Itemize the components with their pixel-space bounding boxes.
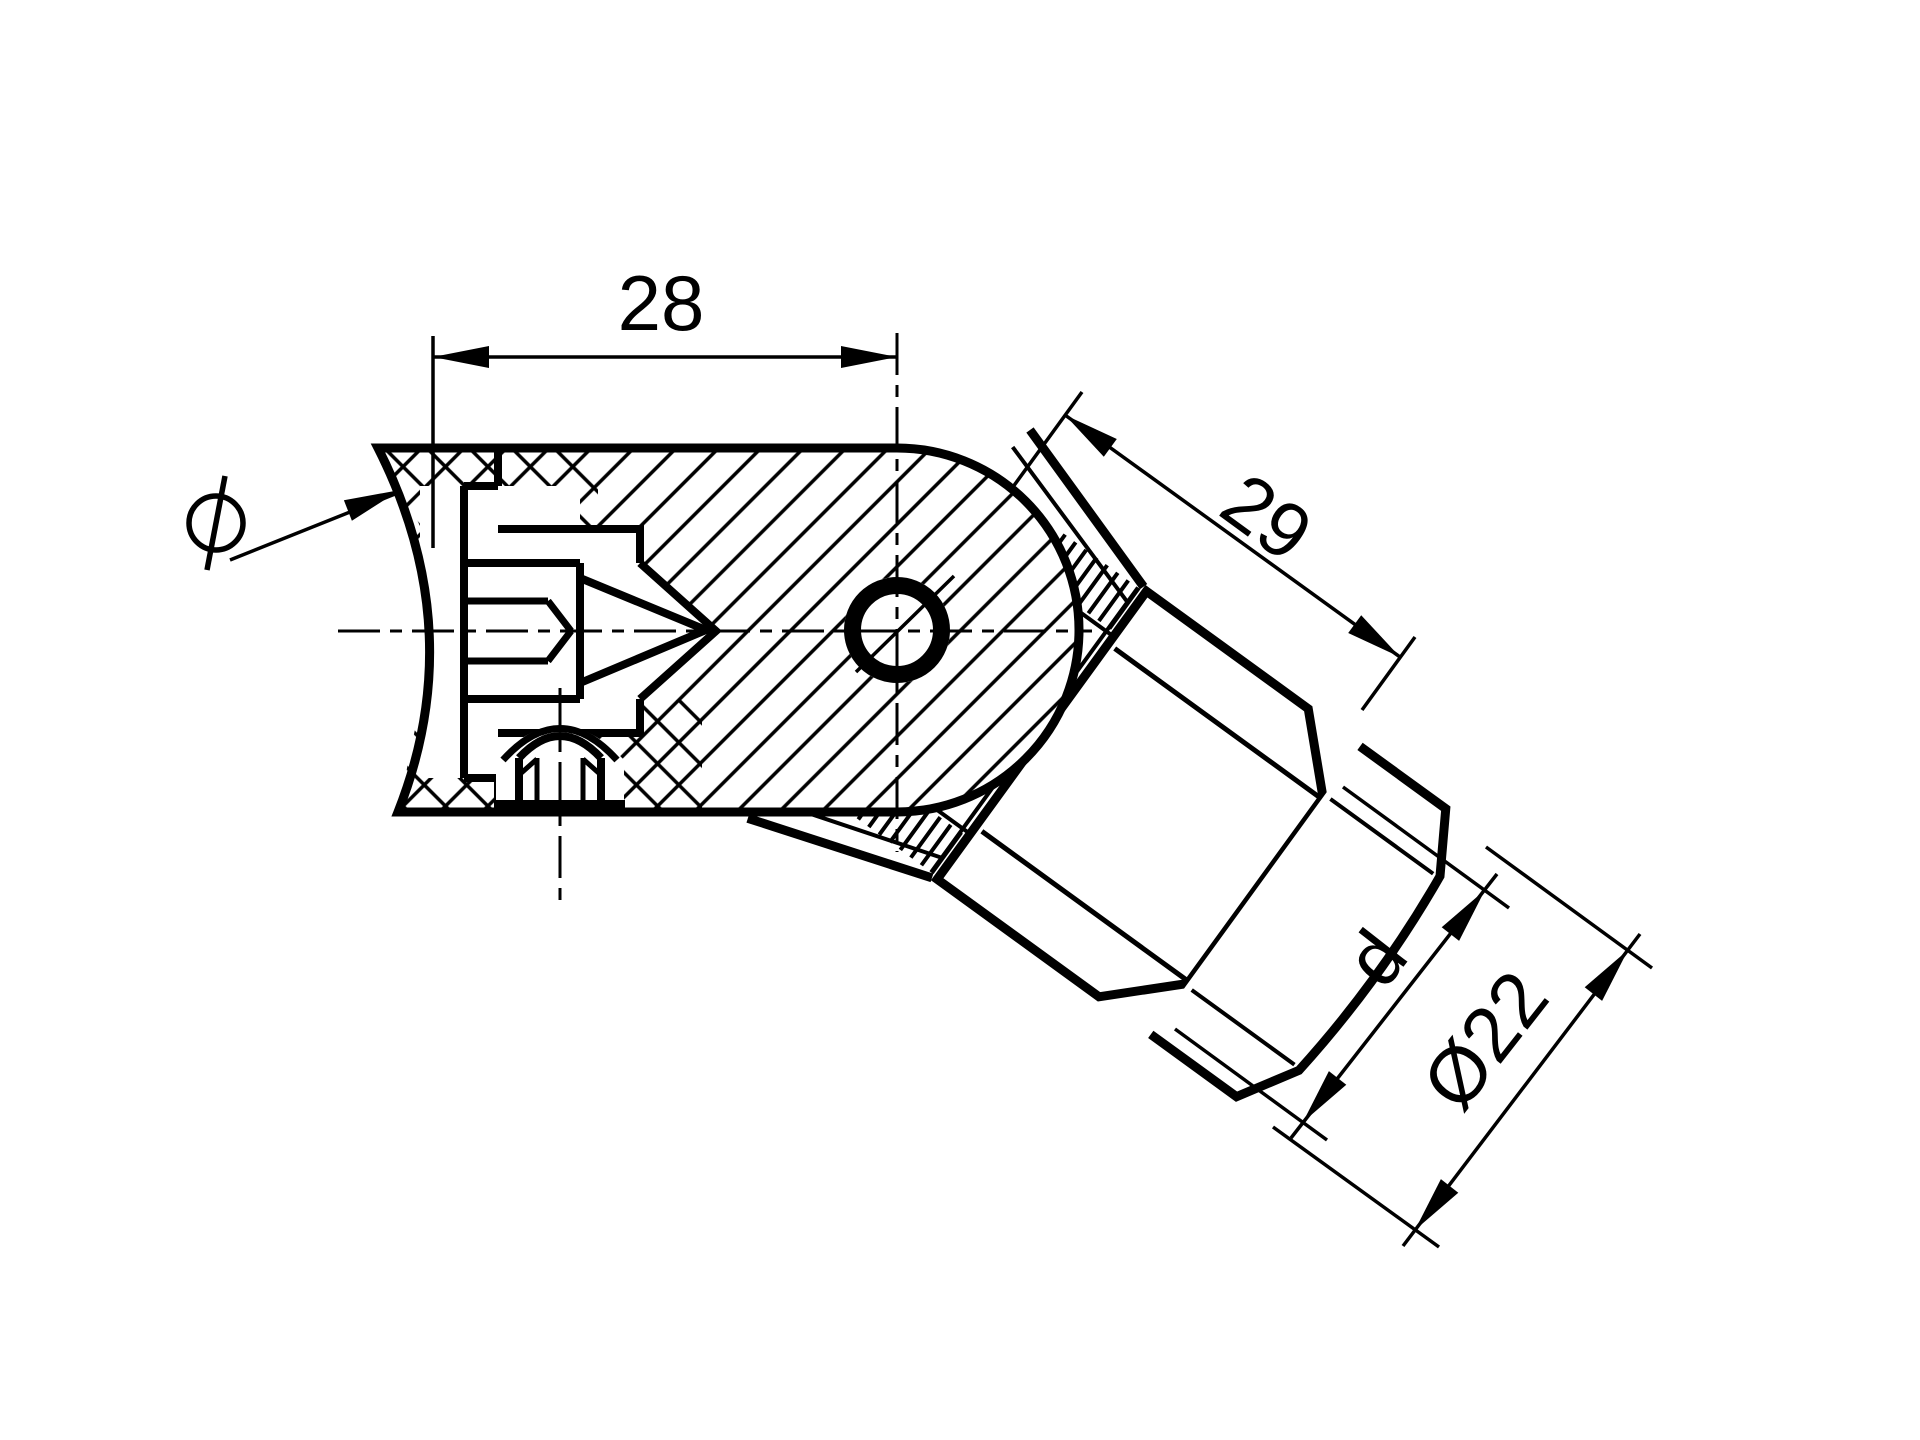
technical-drawing: 28 29 d Ø22 xyxy=(0,0,1920,1440)
drawing-page: 28 29 d Ø22 xyxy=(0,0,1920,1440)
dim-label-28: 28 xyxy=(618,259,705,347)
